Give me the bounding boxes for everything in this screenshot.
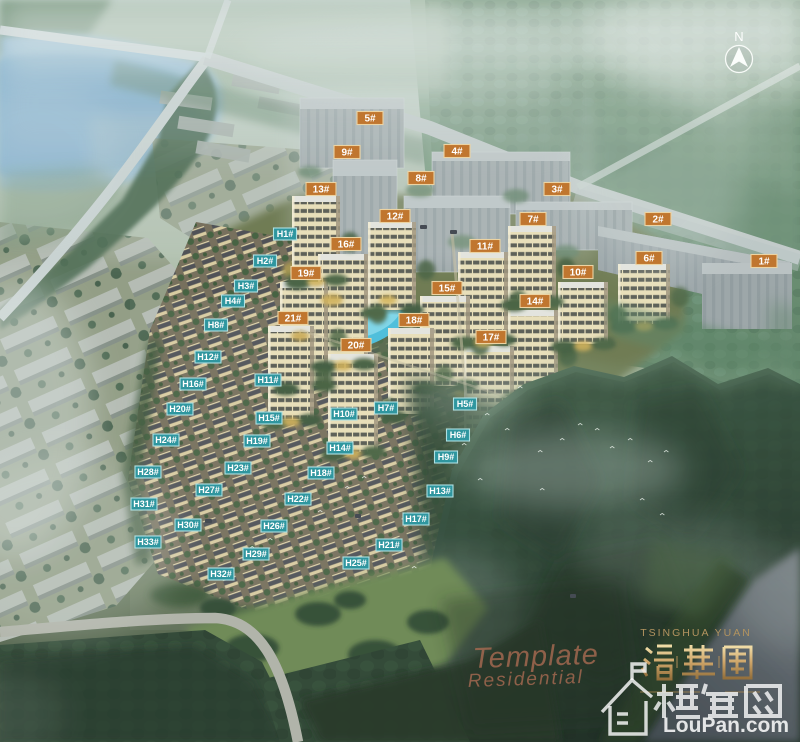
svg-text:LouPan.com: LouPan.com	[663, 714, 789, 737]
svg-text:7#: 7#	[527, 215, 539, 226]
svg-text:H3#: H3#	[238, 281, 255, 291]
svg-text:H17#: H17#	[405, 514, 427, 524]
svg-text:H26#: H26#	[263, 521, 285, 531]
svg-text:19#: 19#	[298, 269, 315, 280]
svg-text:H22#: H22#	[287, 494, 309, 504]
svg-text:H28#: H28#	[137, 467, 159, 477]
svg-text:4#: 4#	[451, 147, 463, 158]
svg-text:N: N	[734, 29, 743, 44]
svg-text:H27#: H27#	[198, 485, 220, 495]
svg-text:H6#: H6#	[450, 430, 467, 440]
svg-text:15#: 15#	[439, 284, 456, 295]
svg-text:1#: 1#	[758, 257, 770, 268]
svg-text:H8#: H8#	[208, 320, 225, 330]
svg-text:6#: 6#	[643, 254, 655, 265]
svg-text:H29#: H29#	[245, 549, 267, 559]
svg-text:H20#: H20#	[169, 404, 191, 414]
svg-text:14#: 14#	[527, 297, 544, 308]
svg-text:8#: 8#	[415, 174, 427, 185]
svg-text:H16#: H16#	[182, 379, 204, 389]
svg-text:12#: 12#	[387, 212, 404, 223]
svg-text:H5#: H5#	[457, 399, 474, 409]
svg-text:H23#: H23#	[227, 463, 249, 473]
svg-text:H4#: H4#	[225, 296, 242, 306]
svg-text:11#: 11#	[477, 242, 494, 253]
svg-text:H2#: H2#	[257, 256, 274, 266]
svg-text:H14#: H14#	[329, 443, 351, 453]
svg-text:H13#: H13#	[429, 486, 451, 496]
svg-text:16#: 16#	[338, 240, 355, 251]
svg-text:3#: 3#	[551, 185, 563, 196]
svg-text:13#: 13#	[313, 185, 330, 196]
svg-text:H12#: H12#	[197, 352, 219, 362]
svg-text:TSINGHUA YUAN: TSINGHUA YUAN	[640, 627, 752, 639]
svg-text:21#: 21#	[285, 314, 302, 325]
svg-text:H11#: H11#	[257, 375, 278, 385]
svg-text:H7#: H7#	[378, 403, 395, 413]
svg-text:H10#: H10#	[333, 409, 355, 419]
svg-text:5#: 5#	[364, 114, 376, 125]
svg-text:H32#: H32#	[210, 569, 232, 579]
svg-text:H21#: H21#	[378, 540, 400, 550]
svg-text:17#: 17#	[483, 333, 500, 344]
svg-text:18#: 18#	[406, 316, 423, 327]
svg-text:H18#: H18#	[310, 468, 332, 478]
svg-text:20#: 20#	[348, 341, 365, 352]
svg-text:Residential: Residential	[467, 667, 584, 692]
svg-text:H9#: H9#	[438, 452, 455, 462]
svg-text:H24#: H24#	[155, 435, 177, 445]
svg-text:H15#: H15#	[258, 413, 280, 423]
svg-text:H25#: H25#	[345, 558, 367, 568]
svg-text:2#: 2#	[652, 215, 664, 226]
svg-text:9#: 9#	[341, 148, 353, 159]
svg-text:H31#: H31#	[133, 499, 155, 509]
svg-text:H30#: H30#	[177, 520, 199, 530]
svg-text:10#: 10#	[570, 268, 587, 279]
svg-text:H33#: H33#	[137, 537, 159, 547]
svg-text:H19#: H19#	[246, 436, 268, 446]
svg-text:H1#: H1#	[277, 229, 294, 239]
